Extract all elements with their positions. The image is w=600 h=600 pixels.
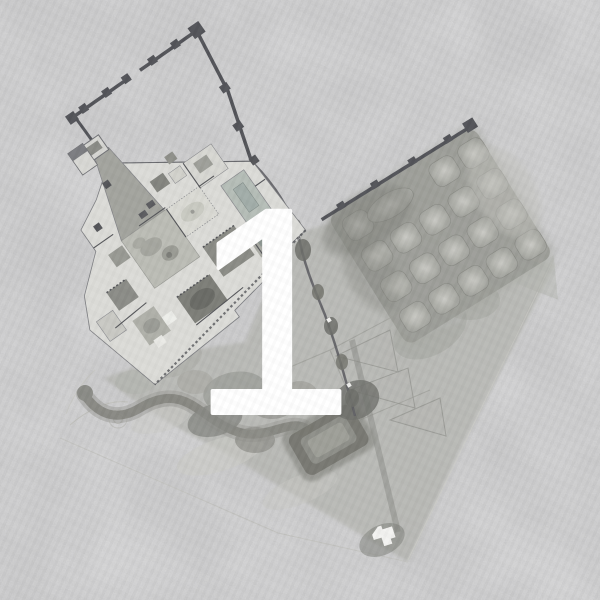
- site-plan-figure: 1: [0, 0, 600, 600]
- index-number: 1: [190, 148, 354, 476]
- site-map: 1: [0, 0, 600, 600]
